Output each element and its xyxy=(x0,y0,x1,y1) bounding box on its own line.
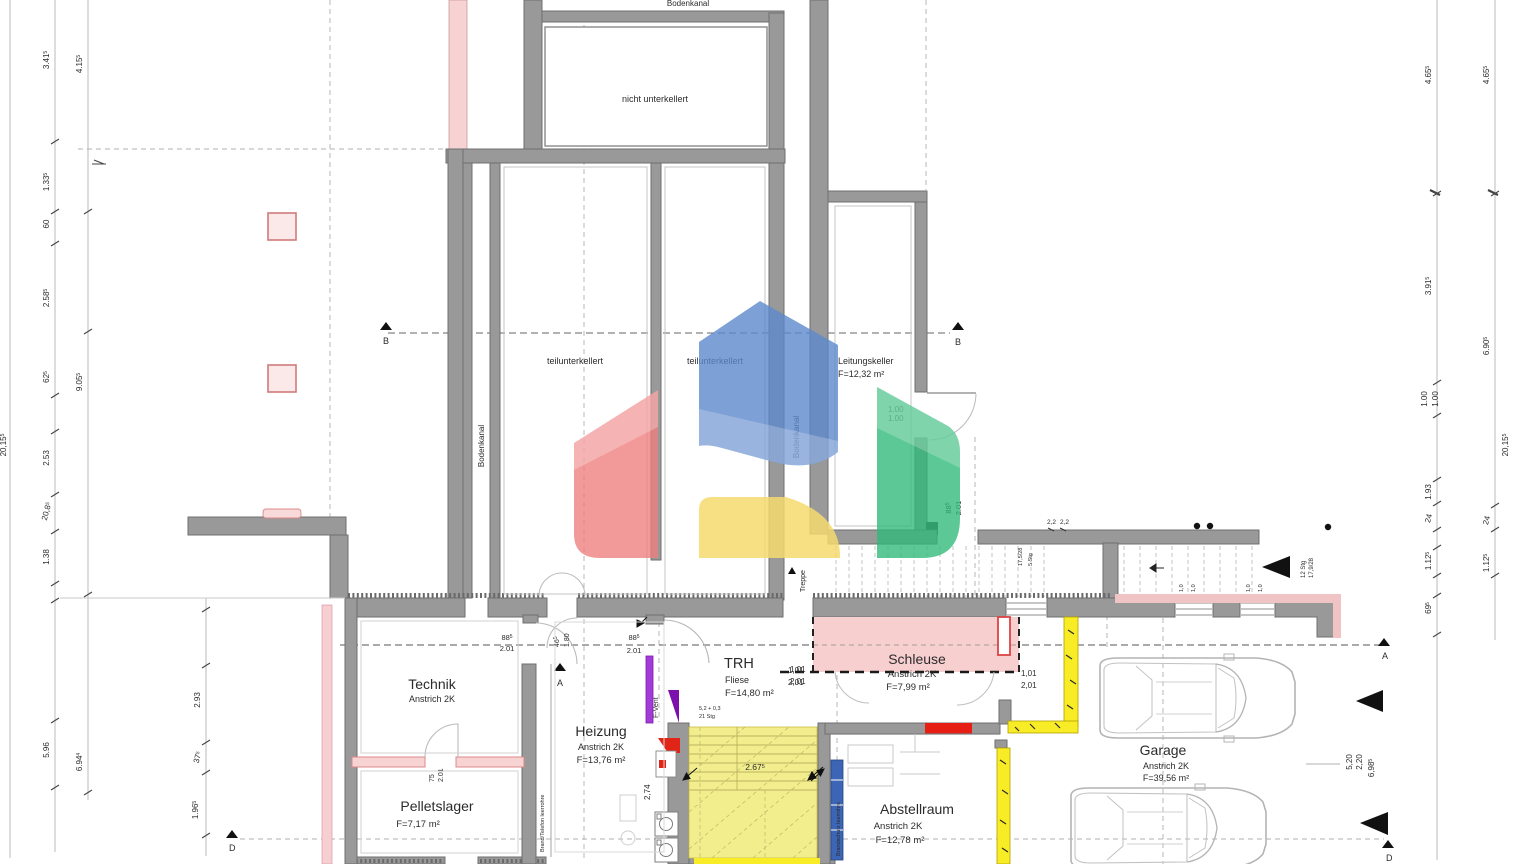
svg-text:5 Stg: 5 Stg xyxy=(1028,553,1034,566)
svg-text:Heizung: Heizung xyxy=(575,723,626,739)
svg-text:2,74: 2,74 xyxy=(643,784,652,800)
svg-text:1,01: 1,01 xyxy=(788,666,804,675)
svg-text:1.00: 1.00 xyxy=(1431,391,1440,407)
svg-text:2.93: 2.93 xyxy=(193,692,202,708)
svg-text:2.01: 2.01 xyxy=(500,644,515,653)
svg-text:2.01: 2.01 xyxy=(627,646,642,655)
svg-text:Anstrich 2K: Anstrich 2K xyxy=(888,669,937,680)
svg-text:D: D xyxy=(1386,853,1393,863)
svg-text:Fliese: Fliese xyxy=(725,675,749,685)
svg-text:20,155: 20,155 xyxy=(0,433,8,456)
svg-text:1,0: 1,0 xyxy=(1179,584,1185,592)
svg-text:D: D xyxy=(229,843,236,853)
svg-text:2,2: 2,2 xyxy=(1047,519,1056,526)
svg-text:1,01: 1,01 xyxy=(1021,669,1037,678)
svg-text:Leitungskeller: Leitungskeller xyxy=(838,356,894,366)
svg-text:21 Stg: 21 Stg xyxy=(699,714,715,720)
svg-text:75: 75 xyxy=(429,774,436,782)
svg-text:2,20: 2,20 xyxy=(1355,754,1364,770)
svg-text:F=7,99 m²: F=7,99 m² xyxy=(886,682,930,693)
svg-text:17,5/28: 17,5/28 xyxy=(1018,548,1024,566)
svg-text:17,9/28: 17,9/28 xyxy=(1309,557,1315,578)
svg-text:2,2: 2,2 xyxy=(1060,519,1069,526)
svg-text:2,01: 2,01 xyxy=(788,678,804,687)
svg-text:2.53: 2.53 xyxy=(42,450,51,466)
svg-text:1.38: 1.38 xyxy=(42,549,51,565)
svg-text:Brand/Telefon leerrohre: Brand/Telefon leerrohre xyxy=(540,795,546,852)
svg-text:Anstrich 2K: Anstrich 2K xyxy=(578,742,624,752)
svg-text:F=13,76 m²: F=13,76 m² xyxy=(577,755,626,766)
svg-text:teilunterkellert: teilunterkellert xyxy=(547,356,604,366)
svg-text:12 Stg: 12 Stg xyxy=(1301,561,1307,578)
svg-text:F=39,56 m²: F=39,56 m² xyxy=(1143,773,1189,783)
svg-text:5,2 + 0,3: 5,2 + 0,3 xyxy=(699,706,721,712)
svg-text:Anstrich 2K: Anstrich 2K xyxy=(1143,761,1189,771)
svg-text:1.93: 1.93 xyxy=(1424,484,1433,500)
svg-text:A: A xyxy=(1382,651,1388,661)
svg-text:Garage: Garage xyxy=(1140,742,1187,758)
svg-text:2.01: 2.01 xyxy=(438,768,445,782)
svg-text:1,0: 1,0 xyxy=(1246,584,1252,592)
svg-text:Pelletslager: Pelletslager xyxy=(400,798,473,814)
svg-text:60: 60 xyxy=(42,219,51,228)
svg-text:1,0: 1,0 xyxy=(1258,584,1264,592)
svg-text:B: B xyxy=(383,336,389,346)
svg-text:Anstrich 2K: Anstrich 2K xyxy=(874,821,923,832)
svg-text:F=12,32 m²: F=12,32 m² xyxy=(838,369,884,379)
svg-text:20,155: 20,155 xyxy=(1501,433,1510,456)
svg-text:Brandschutz leerrohre: Brandschutz leerrohre xyxy=(836,802,842,856)
svg-text:5.96: 5.96 xyxy=(42,742,51,758)
svg-text:Anstrich 2K: Anstrich 2K xyxy=(409,694,455,704)
svg-text:B: B xyxy=(955,337,961,347)
svg-text:Treppe: Treppe xyxy=(800,570,807,592)
svg-text:Schleuse: Schleuse xyxy=(888,651,946,667)
svg-text:A: A xyxy=(557,678,563,688)
svg-text:2,01: 2,01 xyxy=(1021,681,1037,690)
svg-text:F=12,78 m²: F=12,78 m² xyxy=(876,835,925,846)
svg-text:TRH: TRH xyxy=(724,656,754,672)
svg-text:F-Vent: F-Vent xyxy=(653,697,660,718)
svg-text:Abstellraum: Abstellraum xyxy=(880,801,954,817)
svg-text:Bodenkanal: Bodenkanal xyxy=(667,0,709,8)
svg-text:nicht unterkellert: nicht unterkellert xyxy=(622,94,689,104)
svg-text:1.00: 1.00 xyxy=(1420,391,1429,407)
svg-text:Bodenkanal: Bodenkanal xyxy=(477,425,486,467)
svg-text:1,0: 1,0 xyxy=(1191,584,1197,592)
svg-text:F=7,17 m²: F=7,17 m² xyxy=(396,819,440,830)
svg-text:5,20: 5,20 xyxy=(1345,754,1354,770)
svg-text:F=14,80 m²: F=14,80 m² xyxy=(725,688,774,699)
svg-text:Technik: Technik xyxy=(408,676,456,692)
svg-text:1.80: 1.80 xyxy=(564,633,571,647)
